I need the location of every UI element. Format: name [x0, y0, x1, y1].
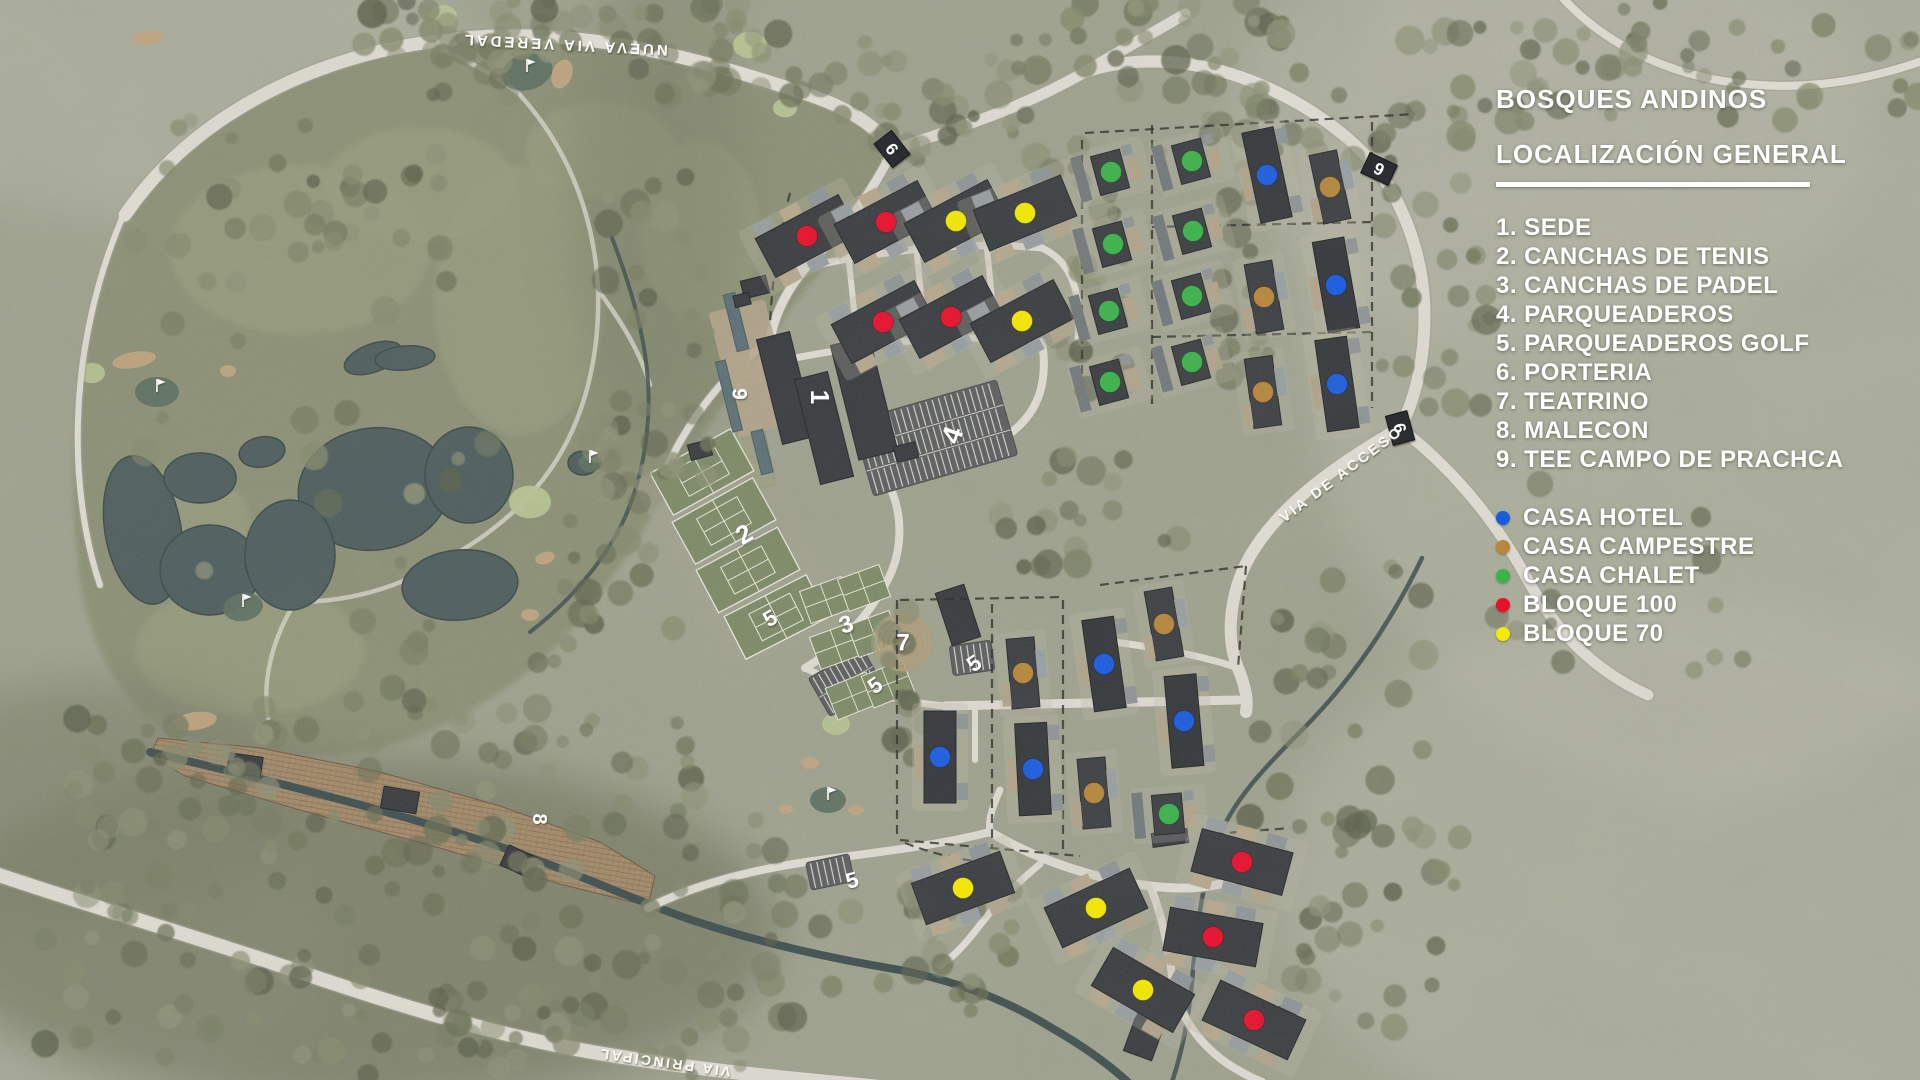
map-marker-8: 8 — [528, 813, 550, 824]
svg-text:8: 8 — [528, 813, 550, 824]
legend-key-row-casa-campestre: CASA CAMPESTRE — [1496, 532, 1896, 561]
legend-place-item: 7. TEATRINO — [1496, 387, 1896, 416]
legend-place-item: 9. TEE CAMPO DE PRACHCA — [1496, 445, 1896, 474]
legend-place-item: 4. PARQUEADEROS — [1496, 300, 1896, 329]
map-marker-9: 9 — [728, 388, 751, 400]
legend-panel: BOSQUES ANDINOS LOCALIZACIÓN GENERAL 1. … — [1496, 84, 1896, 648]
legend-key-label: CASA HOTEL — [1523, 504, 1683, 532]
legend-key-label: CASA CHALET — [1523, 562, 1700, 590]
bloque-70-dot-icon — [1496, 627, 1510, 641]
svg-text:9: 9 — [728, 388, 751, 400]
legend-place-item: 6. PORTERIA — [1496, 358, 1896, 387]
legend-place-item: 1. SEDE — [1496, 213, 1896, 242]
legend-key-row-bloque-100: BLOQUE 100 — [1496, 590, 1896, 619]
page-subtitle: LOCALIZACIÓN GENERAL — [1496, 139, 1896, 170]
legend-place-item: 8. MALECON — [1496, 416, 1896, 445]
bloque-100-dot-icon — [1496, 598, 1510, 612]
legend-place-list: 1. SEDE2. CANCHAS DE TENIS3. CANCHAS DE … — [1496, 213, 1896, 474]
svg-text:1: 1 — [805, 390, 835, 404]
legend-key-row-casa-hotel: CASA HOTEL — [1496, 503, 1896, 532]
legend-place-item: 3. CANCHAS DE PADEL — [1496, 271, 1896, 300]
legend-underline — [1496, 182, 1810, 187]
legend-key-label: BLOQUE 70 — [1523, 620, 1664, 648]
legend-place-item: 2. CANCHAS DE TENIS — [1496, 242, 1896, 271]
svg-text:7: 7 — [896, 629, 909, 656]
map-marker-7: 7 — [896, 629, 909, 656]
page-title: BOSQUES ANDINOS — [1496, 84, 1896, 115]
legend-key-label: CASA CAMPESTRE — [1523, 533, 1754, 561]
legend-key-row-bloque-70: BLOQUE 70 — [1496, 619, 1896, 648]
legend-unit-key: CASA HOTELCASA CAMPESTRECASA CHALETBLOQU… — [1496, 503, 1896, 648]
site-plan-page: 6 9 6 1 9 2 3 4 5 5 5 5 7 8 NUEVA VIA VE… — [0, 0, 1920, 1080]
map-marker-1: 1 — [805, 390, 835, 404]
legend-place-item: 5. PARQUEADEROS GOLF — [1496, 329, 1896, 358]
casa-chalet-dot-icon — [1496, 569, 1510, 583]
casa-campestre-dot-icon — [1496, 540, 1510, 554]
casa-hotel-dot-icon — [1496, 511, 1510, 525]
legend-key-row-casa-chalet: CASA CHALET — [1496, 561, 1896, 590]
legend-key-label: BLOQUE 100 — [1523, 591, 1677, 619]
